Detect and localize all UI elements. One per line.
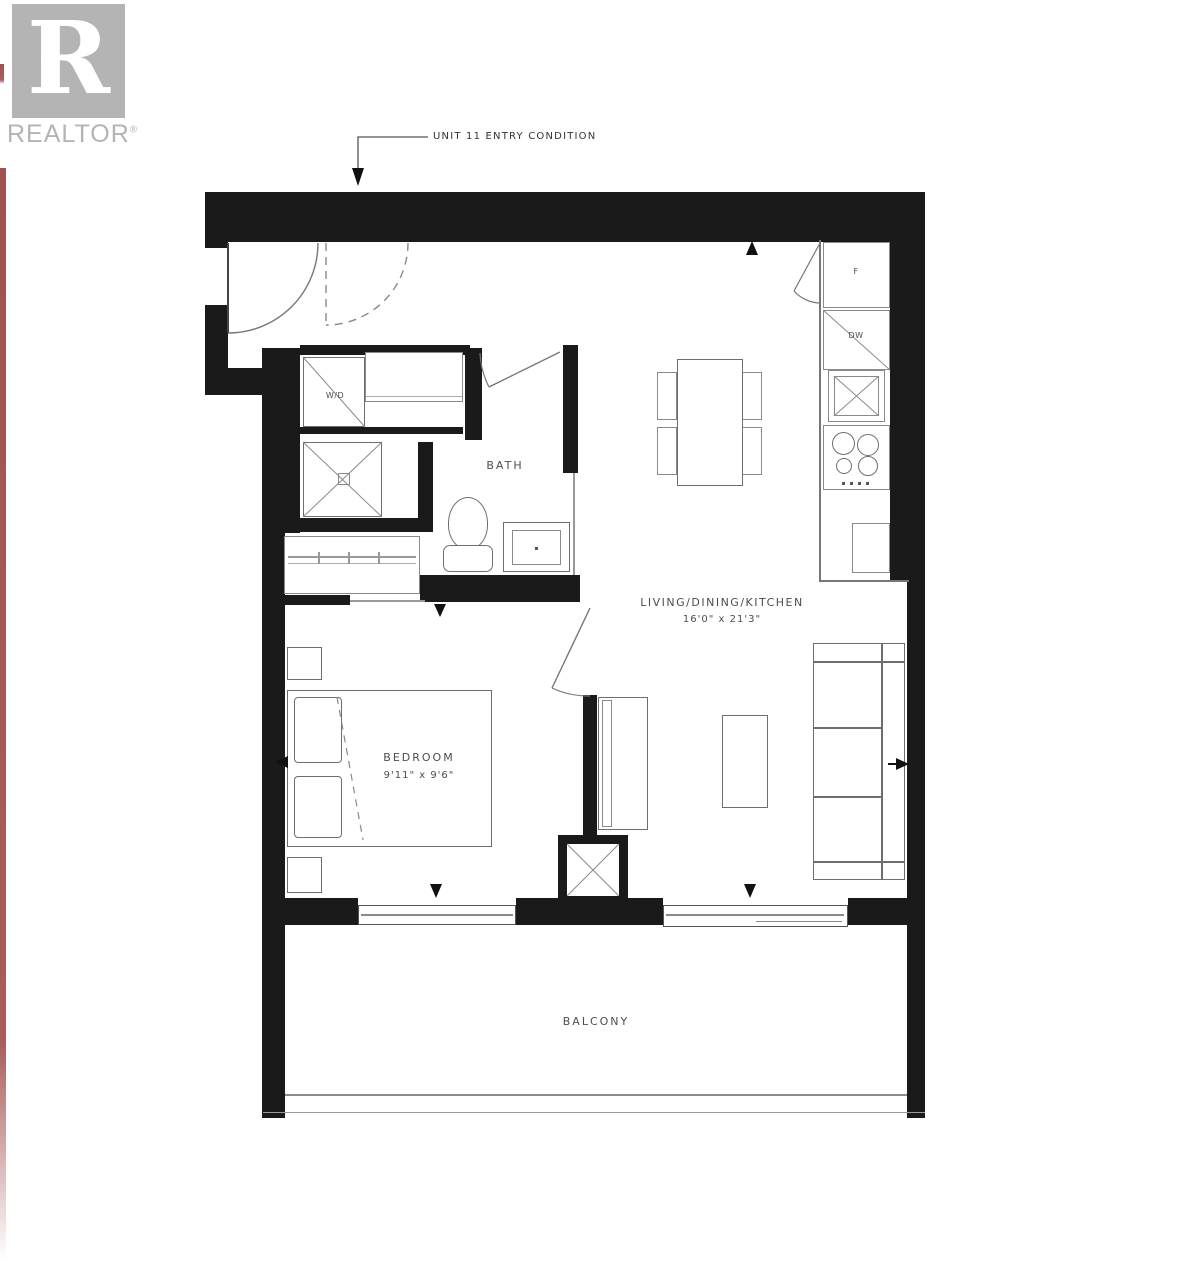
wall-top <box>205 192 925 242</box>
stove-knob-3 <box>858 482 861 485</box>
balcony-railing-line <box>285 1094 907 1096</box>
laundry-counter <box>365 352 463 402</box>
fridge-label: F <box>853 267 858 276</box>
laundry-label: W/D <box>326 391 344 400</box>
closet-hanger-tick-2 <box>348 552 350 564</box>
laundry-counter-line <box>366 396 462 397</box>
wall-left-mid <box>262 348 300 533</box>
realtor-wordmark: REALTOR® <box>7 120 138 149</box>
sofa-seat-line-2 <box>814 796 881 798</box>
pillow-top <box>294 697 342 763</box>
kitchen-base-cabinet <box>852 523 890 573</box>
stove <box>823 425 890 490</box>
closet-rod-line-1 <box>288 556 416 558</box>
wall-laundry-divider <box>300 427 463 434</box>
kitchen-counter-bottom <box>819 580 909 582</box>
closet-rod-line-2 <box>288 563 416 564</box>
stove-knob-2 <box>850 482 853 485</box>
coffee-table <box>722 715 768 808</box>
bedroom-north-edge-line <box>350 600 425 602</box>
wall-bedroom-divider <box>583 695 597 838</box>
kitchen-sink-basin <box>834 376 879 416</box>
sofa-arm-bottom-line <box>814 861 904 863</box>
bedroom-window <box>358 905 516 925</box>
stove-knob-1 <box>842 482 845 485</box>
living-window-arrow <box>744 884 756 898</box>
wall-bath-south <box>420 575 580 602</box>
bath-sink-drain <box>535 547 538 550</box>
structural-column <box>558 835 628 905</box>
dishwasher <box>823 310 890 370</box>
burner-top-right <box>857 434 879 456</box>
wall-bath-door-left-post <box>465 348 482 440</box>
living-window <box>663 905 848 927</box>
wall-top-left-stub <box>205 242 228 248</box>
left-edge-red-strip <box>0 168 6 1260</box>
burner-bottom-right <box>858 456 878 476</box>
bath-label: BATH <box>486 459 523 472</box>
bath-vanity-edge-line <box>573 473 575 575</box>
bedroom-closet <box>284 536 420 594</box>
closet-hanger-tick-3 <box>378 552 380 564</box>
sofa <box>813 643 905 880</box>
bath-door-leaf <box>489 352 560 387</box>
entry-note-leader <box>358 137 428 168</box>
entry-note-arrowhead <box>352 168 364 186</box>
pillow-bottom <box>294 776 342 838</box>
dishwasher-label: DW <box>848 331 863 340</box>
balcony-edge-line <box>263 1112 925 1113</box>
burner-bottom-left <box>836 458 852 474</box>
nightstand-bottom <box>287 857 322 893</box>
entry-door-arc <box>228 243 318 333</box>
toilet-tank <box>443 545 493 572</box>
dining-chair-right-1 <box>742 372 762 420</box>
shower-drain <box>338 473 350 485</box>
bedroom-dims-label: 9'11" x 9'6" <box>384 770 455 781</box>
floor-plan-canvas: R REALTOR® <box>0 0 1178 1286</box>
sofa-back-line <box>881 644 883 879</box>
wall-right-upper <box>890 192 925 582</box>
burner-top-left <box>832 432 855 455</box>
entry-condition-note: UNIT 11 ENTRY CONDITION <box>433 131 596 142</box>
stove-knob-4 <box>866 482 869 485</box>
bedroom-entry-arrow <box>434 604 446 617</box>
wall-left-lower <box>262 533 285 925</box>
wall-bath-lower-left <box>418 442 433 532</box>
closet-hanger-tick-1 <box>318 552 320 564</box>
wall-shower-south <box>285 518 420 532</box>
nightstand-top <box>287 647 322 680</box>
wall-bath-right <box>563 345 578 473</box>
realtor-logo-icon: R <box>12 4 125 118</box>
bedroom-label: BEDROOM <box>383 751 454 764</box>
sofa-seat-line-1 <box>814 727 881 729</box>
wall-closet-south <box>278 595 350 605</box>
bedroom-door-leaf <box>552 608 590 688</box>
kitchen-top-arrow <box>746 241 758 255</box>
living-window-sill <box>756 921 842 922</box>
living-dims-label: 16'0" x 21'3" <box>683 614 761 625</box>
fridge-door-arc <box>794 291 821 303</box>
wall-bottom-left <box>262 898 358 925</box>
left-edge-red-mark <box>0 64 4 84</box>
bedroom-window-glazing <box>361 914 513 916</box>
wall-balcony-right <box>907 925 925 1118</box>
sofa-arm-top-line <box>814 661 904 663</box>
dining-chair-right-2 <box>742 427 762 475</box>
living-window-glazing <box>666 914 844 916</box>
living-label: LIVING/DINING/KITCHEN <box>640 596 803 609</box>
dining-chair-left-1 <box>657 372 677 420</box>
toilet-bowl <box>448 497 488 549</box>
fridge-door-leaf <box>794 243 820 291</box>
bedroom-window-arrow <box>430 884 442 898</box>
tv-screen <box>602 700 612 827</box>
balcony-label: BALCONY <box>563 1015 630 1028</box>
kitchen-counter-edge <box>819 240 821 582</box>
realtor-logo-letter: R <box>27 8 110 108</box>
entry-closet-door-arc <box>326 243 408 325</box>
dining-table <box>677 359 743 486</box>
wall-bottom-right <box>848 898 925 925</box>
dining-chair-left-2 <box>657 427 677 475</box>
registered-mark: ® <box>130 125 138 136</box>
wall-right-lower <box>907 582 925 925</box>
wall-balcony-left <box>262 925 285 1118</box>
